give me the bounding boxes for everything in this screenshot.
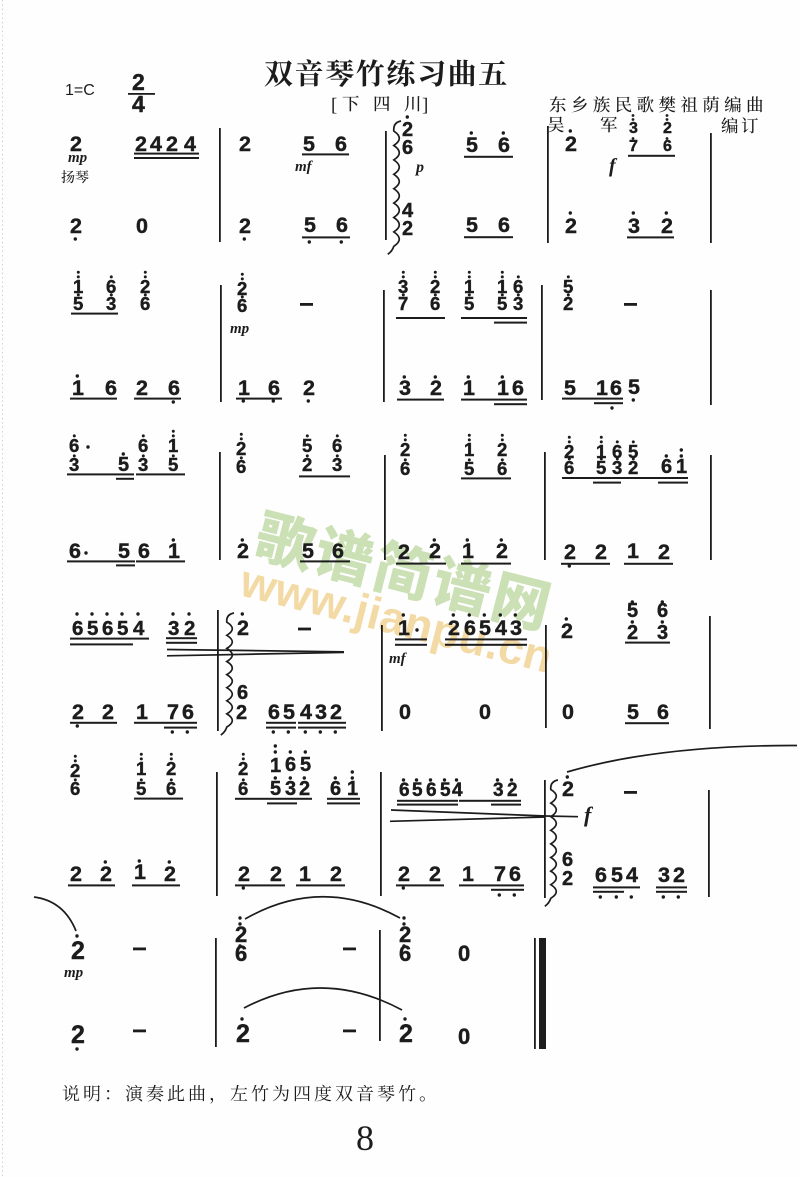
svg-text:6: 6 xyxy=(657,700,669,724)
svg-text:2: 2 xyxy=(562,868,573,890)
svg-text:6: 6 xyxy=(102,617,113,640)
svg-text:6: 6 xyxy=(498,213,510,237)
svg-text:2: 2 xyxy=(72,700,84,724)
svg-text:4: 4 xyxy=(300,700,312,724)
svg-text:6: 6 xyxy=(168,376,180,400)
svg-text:6: 6 xyxy=(69,435,79,456)
svg-text:6: 6 xyxy=(332,435,342,456)
svg-text:p: p xyxy=(414,159,424,176)
svg-text:2: 2 xyxy=(166,758,176,779)
svg-text:1: 1 xyxy=(136,700,148,724)
svg-text:4: 4 xyxy=(150,132,162,156)
svg-text:3: 3 xyxy=(285,778,296,800)
svg-text:1: 1 xyxy=(136,758,146,779)
svg-text:0: 0 xyxy=(479,700,491,724)
svg-text:6: 6 xyxy=(464,616,476,640)
svg-text:2: 2 xyxy=(164,862,176,886)
svg-text:2: 2 xyxy=(236,702,247,724)
svg-text:mf: mf xyxy=(295,159,314,175)
svg-text:[: [ xyxy=(331,95,337,116)
svg-text:1: 1 xyxy=(627,539,639,563)
svg-text:6: 6 xyxy=(661,456,672,478)
svg-text:mp: mp xyxy=(230,321,250,337)
svg-text:5: 5 xyxy=(564,376,576,400)
svg-text:2: 2 xyxy=(430,376,442,400)
svg-text:2: 2 xyxy=(239,132,251,156)
svg-text:1=C: 1=C xyxy=(65,82,95,99)
svg-text:4: 4 xyxy=(452,780,463,801)
svg-text:6: 6 xyxy=(610,376,622,400)
svg-text:2: 2 xyxy=(429,862,441,886)
svg-text:4: 4 xyxy=(132,91,145,117)
svg-text:0: 0 xyxy=(136,214,148,238)
svg-text:3: 3 xyxy=(658,863,670,887)
svg-text:6: 6 xyxy=(336,213,348,237)
svg-text:8: 8 xyxy=(356,1118,374,1158)
svg-text:5: 5 xyxy=(300,754,311,776)
svg-text:1: 1 xyxy=(299,862,311,886)
svg-text:mp: mp xyxy=(68,150,88,166)
svg-text:2: 2 xyxy=(236,1020,250,1048)
svg-text:3: 3 xyxy=(629,120,638,137)
svg-text:2: 2 xyxy=(330,700,342,724)
svg-text:5: 5 xyxy=(303,132,315,156)
svg-text:5: 5 xyxy=(466,133,478,157)
svg-text:6: 6 xyxy=(663,138,672,155)
svg-text:3: 3 xyxy=(510,616,522,640)
svg-text:5: 5 xyxy=(302,435,312,456)
svg-text:2: 2 xyxy=(238,862,250,886)
svg-text:2: 2 xyxy=(507,780,518,801)
svg-text:3: 3 xyxy=(399,376,411,400)
svg-text:5: 5 xyxy=(479,616,491,640)
svg-text:7: 7 xyxy=(494,862,506,886)
svg-text:5: 5 xyxy=(270,778,281,800)
svg-text:6: 6 xyxy=(285,754,296,776)
svg-text:5: 5 xyxy=(440,780,451,801)
svg-text:2: 2 xyxy=(497,439,507,460)
svg-text:1: 1 xyxy=(464,439,474,460)
svg-text:2: 2 xyxy=(166,132,178,156)
svg-text:2: 2 xyxy=(565,214,577,238)
svg-text:2: 2 xyxy=(70,214,82,238)
svg-text:2: 2 xyxy=(71,937,85,965)
svg-text:7: 7 xyxy=(167,700,179,724)
svg-text:6: 6 xyxy=(268,700,280,724)
svg-text:1: 1 xyxy=(398,616,410,640)
svg-text:2: 2 xyxy=(562,777,574,801)
svg-text:2: 2 xyxy=(270,862,282,886)
svg-text:1: 1 xyxy=(596,376,608,400)
svg-text:1: 1 xyxy=(270,755,281,777)
svg-text:4: 4 xyxy=(495,616,507,640)
svg-text:]: ] xyxy=(422,95,428,116)
svg-text:3: 3 xyxy=(657,622,668,644)
svg-text:3: 3 xyxy=(628,214,640,238)
svg-text:5: 5 xyxy=(118,454,129,476)
svg-text:2: 2 xyxy=(100,862,112,886)
svg-text:2: 2 xyxy=(429,539,441,563)
svg-text:5: 5 xyxy=(466,213,478,237)
svg-text:5: 5 xyxy=(302,539,314,563)
svg-text:2: 2 xyxy=(661,214,673,238)
svg-text:2: 2 xyxy=(496,539,508,563)
svg-text:1: 1 xyxy=(462,862,474,886)
svg-text:2: 2 xyxy=(330,862,342,886)
svg-text:5: 5 xyxy=(628,375,640,399)
svg-text:6: 6 xyxy=(182,700,194,724)
svg-text:1: 1 xyxy=(72,376,84,400)
svg-text:2: 2 xyxy=(564,540,576,564)
svg-text:2: 2 xyxy=(184,617,195,640)
svg-text:2: 2 xyxy=(627,622,638,644)
svg-text:2: 2 xyxy=(448,616,460,640)
svg-text:1: 1 xyxy=(134,860,146,884)
svg-text:1: 1 xyxy=(676,456,687,478)
svg-text:2: 2 xyxy=(565,132,577,156)
svg-text:6: 6 xyxy=(512,376,524,400)
svg-text:5: 5 xyxy=(283,700,295,724)
svg-text:2: 2 xyxy=(673,863,685,887)
svg-text:6: 6 xyxy=(330,778,341,800)
svg-text:2: 2 xyxy=(398,862,410,886)
svg-text:4: 4 xyxy=(626,863,638,887)
svg-text:4: 4 xyxy=(133,617,145,640)
svg-text:7: 7 xyxy=(629,138,638,155)
svg-text:1: 1 xyxy=(462,539,474,563)
svg-text:6: 6 xyxy=(138,539,150,563)
svg-text:2: 2 xyxy=(238,758,248,779)
svg-text:6: 6 xyxy=(399,780,410,801)
svg-text:2: 2 xyxy=(237,539,249,563)
svg-text:6: 6 xyxy=(335,132,347,156)
svg-text:6: 6 xyxy=(498,133,510,157)
svg-text:2: 2 xyxy=(663,120,672,137)
svg-text:6: 6 xyxy=(237,682,248,704)
svg-text:6: 6 xyxy=(595,863,607,887)
svg-text:2: 2 xyxy=(237,616,249,640)
svg-text:2: 2 xyxy=(595,540,607,564)
svg-text:1: 1 xyxy=(347,778,358,800)
svg-text:1: 1 xyxy=(238,376,250,400)
svg-text:0: 0 xyxy=(458,1024,470,1049)
svg-text:5: 5 xyxy=(627,700,639,724)
svg-text:6: 6 xyxy=(138,435,148,456)
svg-text:2: 2 xyxy=(658,540,670,564)
svg-text:2: 2 xyxy=(102,700,114,724)
svg-text:1: 1 xyxy=(497,376,509,400)
svg-text:2: 2 xyxy=(561,619,573,643)
svg-text:2: 2 xyxy=(136,376,148,400)
svg-text:5: 5 xyxy=(118,539,130,563)
svg-text:mf: mf xyxy=(389,651,408,667)
svg-text:6: 6 xyxy=(268,376,280,400)
svg-text:5: 5 xyxy=(611,863,623,887)
svg-text:6: 6 xyxy=(426,780,437,801)
svg-text:2: 2 xyxy=(70,862,82,886)
svg-text:2: 2 xyxy=(303,376,315,400)
svg-text:5: 5 xyxy=(117,617,128,640)
svg-text:1: 1 xyxy=(168,435,178,456)
svg-text:6: 6 xyxy=(72,617,83,640)
svg-text:2: 2 xyxy=(71,1021,85,1049)
svg-text:3: 3 xyxy=(493,780,504,801)
svg-text:0: 0 xyxy=(562,700,574,724)
svg-text:5: 5 xyxy=(87,617,98,640)
svg-text:6: 6 xyxy=(105,376,117,400)
svg-text:4: 4 xyxy=(184,132,196,156)
svg-text:0: 0 xyxy=(399,700,411,724)
svg-text:6: 6 xyxy=(402,137,413,159)
svg-text:6: 6 xyxy=(69,539,81,563)
svg-text:2: 2 xyxy=(402,218,413,240)
svg-text:1: 1 xyxy=(168,539,180,563)
svg-text:2: 2 xyxy=(399,1020,413,1048)
svg-text:5: 5 xyxy=(304,213,316,237)
svg-text:2: 2 xyxy=(398,540,410,564)
svg-text:0: 0 xyxy=(458,941,470,966)
svg-text:6: 6 xyxy=(509,862,521,886)
svg-text:3: 3 xyxy=(168,617,179,640)
svg-text:2: 2 xyxy=(135,132,147,156)
svg-text:2: 2 xyxy=(239,214,251,238)
svg-text:mp: mp xyxy=(64,965,84,981)
svg-text:3: 3 xyxy=(315,700,327,724)
svg-text:5: 5 xyxy=(412,780,423,801)
svg-text:6: 6 xyxy=(332,539,344,563)
svg-text:2: 2 xyxy=(299,778,310,800)
svg-text:1: 1 xyxy=(463,376,475,400)
svg-text:2: 2 xyxy=(400,439,410,460)
